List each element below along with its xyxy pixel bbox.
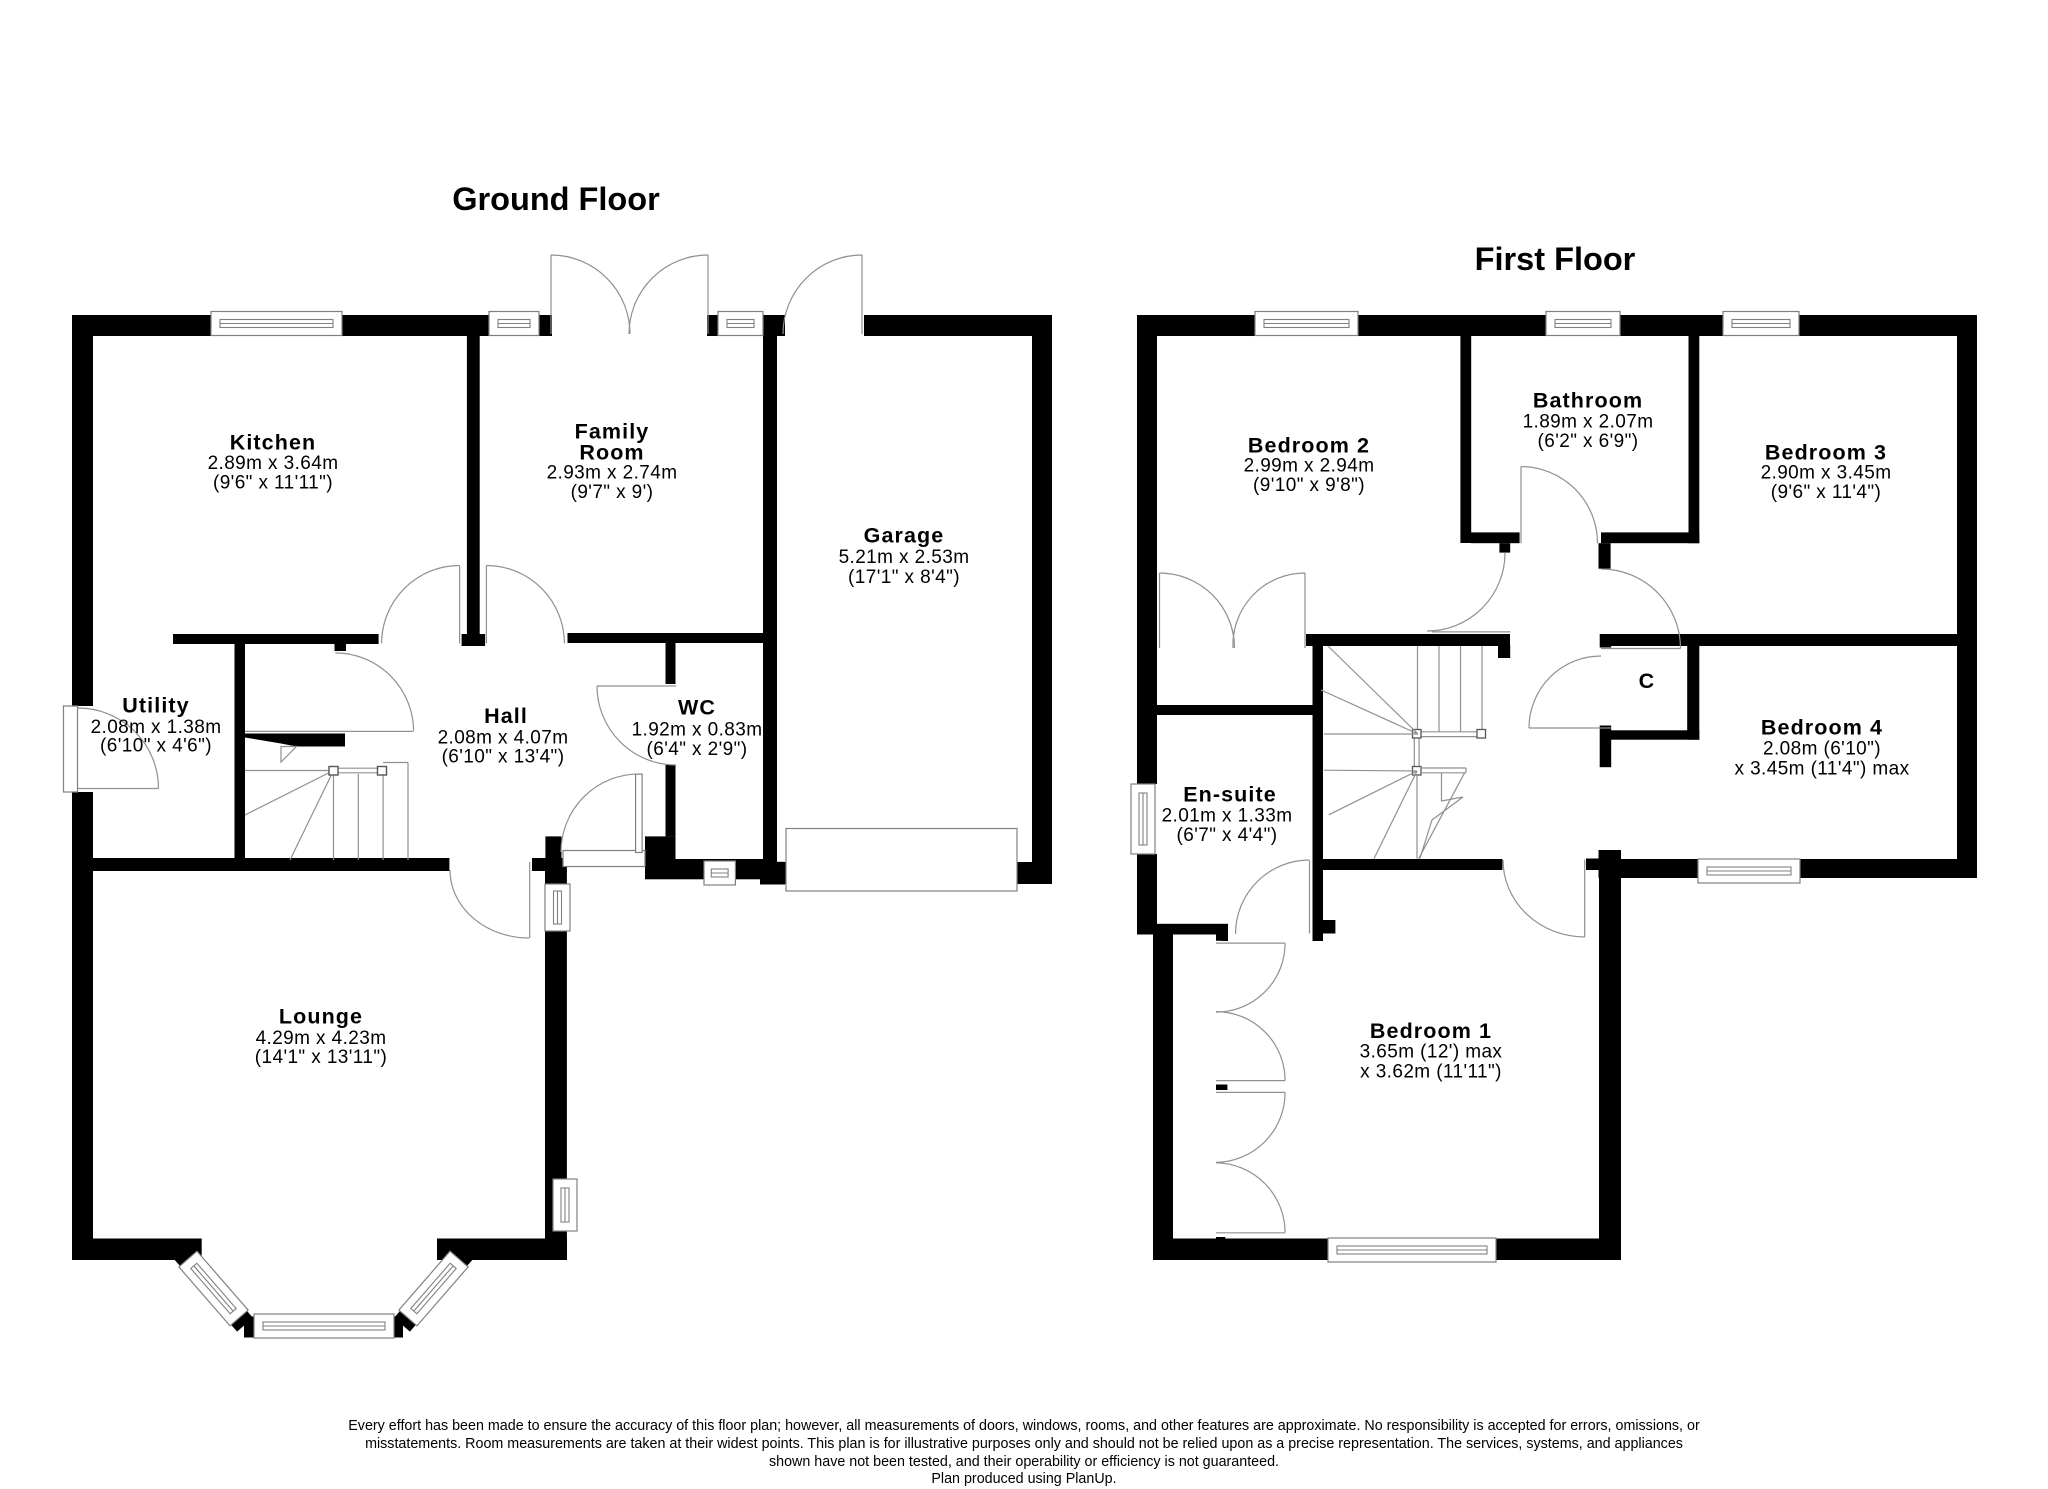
svg-text:Bedroom 2: Bedroom 2 (1248, 434, 1370, 458)
svg-text:2.01m x 1.33m: 2.01m x 1.33m (1162, 806, 1293, 827)
svg-text:Hall: Hall (484, 704, 528, 728)
svg-text:x 3.45m (11'4") max: x 3.45m (11'4") max (1735, 759, 1910, 780)
svg-text:Kitchen: Kitchen (230, 431, 317, 455)
svg-text:2.08m x 4.07m: 2.08m x 4.07m (438, 728, 569, 749)
svg-text:2.93m x 2.74m: 2.93m x 2.74m (547, 463, 678, 484)
svg-text:(6'4" x 2'9"): (6'4" x 2'9") (647, 739, 748, 760)
svg-text:(6'10" x 13'4"): (6'10" x 13'4") (442, 747, 565, 768)
svg-text:2.89m x 3.64m: 2.89m x 3.64m (208, 453, 339, 474)
svg-text:(9'6" x 11'4"): (9'6" x 11'4") (1771, 482, 1881, 503)
svg-text:(14'1" x 13'11"): (14'1" x 13'11") (255, 1047, 387, 1068)
svg-text:2.08m (6'10"): 2.08m (6'10") (1763, 739, 1881, 760)
svg-text:(9'10" x 9'8"): (9'10" x 9'8") (1253, 475, 1365, 496)
svg-text:4.29m x 4.23m: 4.29m x 4.23m (256, 1028, 387, 1049)
svg-text:5.21m x 2.53m: 5.21m x 2.53m (839, 547, 970, 568)
svg-text:(6'10" x 4'6"): (6'10" x 4'6") (100, 736, 212, 757)
svg-text:misstatements. Room measuremen: misstatements. Room measurements are tak… (365, 1436, 1683, 1452)
svg-text:2.99m x 2.94m: 2.99m x 2.94m (1244, 456, 1375, 477)
svg-text:WC: WC (678, 696, 716, 720)
svg-text:shown have not been tested, an: shown have not been tested, and their op… (769, 1454, 1279, 1470)
svg-text:1.92m x 0.83m: 1.92m x 0.83m (632, 720, 763, 741)
svg-text:First Floor: First Floor (1475, 241, 1636, 277)
svg-text:x 3.62m (11'11"): x 3.62m (11'11") (1360, 1062, 1502, 1083)
svg-text:Plan produced using PlanUp.: Plan produced using PlanUp. (931, 1471, 1116, 1487)
svg-text:Room: Room (579, 441, 644, 465)
svg-text:Bedroom 3: Bedroom 3 (1765, 441, 1887, 465)
svg-text:(17'1" x 8'4"): (17'1" x 8'4") (848, 567, 960, 588)
svg-text:Bathroom: Bathroom (1533, 389, 1643, 413)
svg-text:Ground Floor: Ground Floor (452, 181, 660, 217)
svg-text:2.90m x 3.45m: 2.90m x 3.45m (1761, 463, 1892, 484)
svg-text:3.65m (12') max: 3.65m (12') max (1360, 1042, 1503, 1063)
svg-text:Garage: Garage (864, 524, 945, 548)
svg-text:En-suite: En-suite (1183, 783, 1277, 807)
svg-text:(9'6" x 11'11"): (9'6" x 11'11") (213, 473, 333, 494)
svg-text:Bedroom 1: Bedroom 1 (1370, 1019, 1492, 1043)
svg-text:(6'2" x 6'9"): (6'2" x 6'9") (1538, 431, 1639, 452)
svg-text:Bedroom 4: Bedroom 4 (1761, 716, 1883, 740)
svg-text:C: C (1639, 669, 1656, 693)
svg-text:1.89m x 2.07m: 1.89m x 2.07m (1523, 412, 1654, 433)
svg-text:(9'7" x 9'): (9'7" x 9') (571, 482, 654, 503)
svg-text:Lounge: Lounge (279, 1005, 363, 1029)
svg-text:(6'7" x 4'4"): (6'7" x 4'4") (1177, 825, 1278, 846)
svg-text:Every effort has been made to: Every effort has been made to ensure the… (348, 1418, 1700, 1434)
svg-text:Utility: Utility (122, 694, 189, 718)
